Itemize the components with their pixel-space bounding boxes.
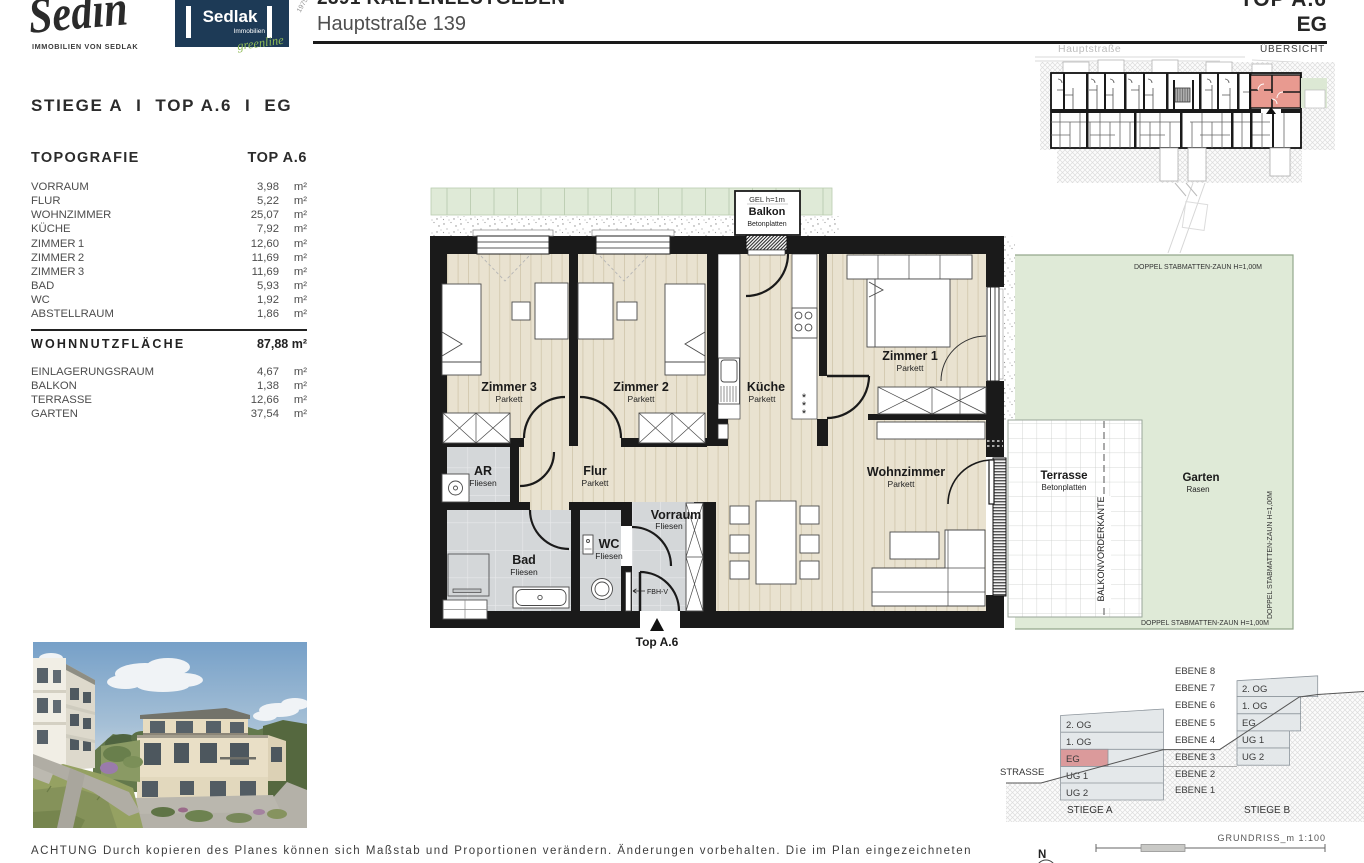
svg-text:BALKONVORDERKANTE: BALKONVORDERKANTE <box>1096 496 1106 601</box>
svg-text:FBH-V: FBH-V <box>647 589 668 596</box>
svg-text:Betonplatten: Betonplatten <box>747 221 786 228</box>
svg-text:AR: AR <box>474 464 492 478</box>
svg-text:Fliesen: Fliesen <box>469 478 497 488</box>
svg-text:Betonplatten: Betonplatten <box>1042 483 1087 492</box>
svg-text:2. OG: 2. OG <box>1066 720 1091 731</box>
svg-text:STIEGE B: STIEGE B <box>1244 805 1290 816</box>
svg-text:Fliesen: Fliesen <box>655 521 683 531</box>
svg-text:UG 1: UG 1 <box>1242 735 1264 746</box>
svg-text:Bad: Bad <box>512 553 536 567</box>
svg-text:EG: EG <box>1066 754 1080 765</box>
svg-text:ÜBERSICHT: ÜBERSICHT <box>1260 43 1325 55</box>
svg-text:UG 2: UG 2 <box>1066 788 1088 799</box>
svg-text:Parkett: Parkett <box>897 363 925 373</box>
svg-text:2. OG: 2. OG <box>1242 684 1267 695</box>
svg-text:*: * <box>802 408 807 420</box>
svg-text:STRASSE: STRASSE <box>1000 767 1044 778</box>
svg-text:WC: WC <box>599 537 620 551</box>
svg-text:Vorraum: Vorraum <box>651 508 701 522</box>
svg-text:Flur: Flur <box>583 464 607 478</box>
svg-text:GEL h=1m: GEL h=1m <box>749 195 785 204</box>
svg-text:EBENE 8: EBENE 8 <box>1175 666 1215 677</box>
svg-text:Terrasse: Terrasse <box>1040 470 1087 482</box>
svg-text:1. OG: 1. OG <box>1242 701 1267 712</box>
svg-text:Hauptstraße: Hauptstraße <box>1058 43 1121 55</box>
svg-text:EBENE 3: EBENE 3 <box>1175 752 1215 763</box>
svg-text:Garten: Garten <box>1182 472 1219 484</box>
svg-text:Küche: Küche <box>747 380 785 394</box>
svg-text:Zimmer 3: Zimmer 3 <box>481 380 537 394</box>
svg-text:DOPPEL STABMATTEN-ZAUN H=1,00M: DOPPEL STABMATTEN-ZAUN H=1,00M <box>1267 491 1274 619</box>
svg-text:Fliesen: Fliesen <box>595 551 623 561</box>
svg-text:Parkett: Parkett <box>749 394 777 404</box>
svg-text:Zimmer 1: Zimmer 1 <box>882 349 938 363</box>
svg-text:EBENE 2: EBENE 2 <box>1175 769 1215 780</box>
svg-text:DOPPEL STABMATTEN-ZAUN H=1,00M: DOPPEL STABMATTEN-ZAUN H=1,00M <box>1134 264 1262 271</box>
svg-text:EBENE 1: EBENE 1 <box>1175 785 1215 796</box>
svg-text:EBENE 5: EBENE 5 <box>1175 718 1215 729</box>
svg-text:Parkett: Parkett <box>888 479 916 489</box>
svg-text:EBENE 6: EBENE 6 <box>1175 700 1215 711</box>
svg-text:Parkett: Parkett <box>496 394 524 404</box>
svg-text:STIEGE A: STIEGE A <box>1067 805 1113 816</box>
svg-text:EBENE 4: EBENE 4 <box>1175 735 1215 746</box>
svg-text:Zimmer 2: Zimmer 2 <box>613 380 669 394</box>
svg-text:Balkon: Balkon <box>749 206 786 218</box>
svg-text:N: N <box>1038 849 1046 861</box>
svg-text:DOPPEL STABMATTEN-ZAUN H=1,00M: DOPPEL STABMATTEN-ZAUN H=1,00M <box>1141 620 1269 627</box>
svg-text:UG 2: UG 2 <box>1242 752 1264 763</box>
svg-text:GRUNDRISS_m 1:100: GRUNDRISS_m 1:100 <box>1217 833 1326 843</box>
svg-text:EBENE 7: EBENE 7 <box>1175 683 1215 694</box>
svg-text:Wohnzimmer: Wohnzimmer <box>867 465 945 479</box>
svg-text:Rasen: Rasen <box>1186 485 1209 494</box>
svg-text:Fliesen: Fliesen <box>510 567 538 577</box>
svg-text:Top A.6: Top A.6 <box>636 635 679 649</box>
svg-text:Parkett: Parkett <box>582 478 610 488</box>
svg-text:Parkett: Parkett <box>628 394 656 404</box>
svg-text:1. OG: 1. OG <box>1066 737 1091 748</box>
